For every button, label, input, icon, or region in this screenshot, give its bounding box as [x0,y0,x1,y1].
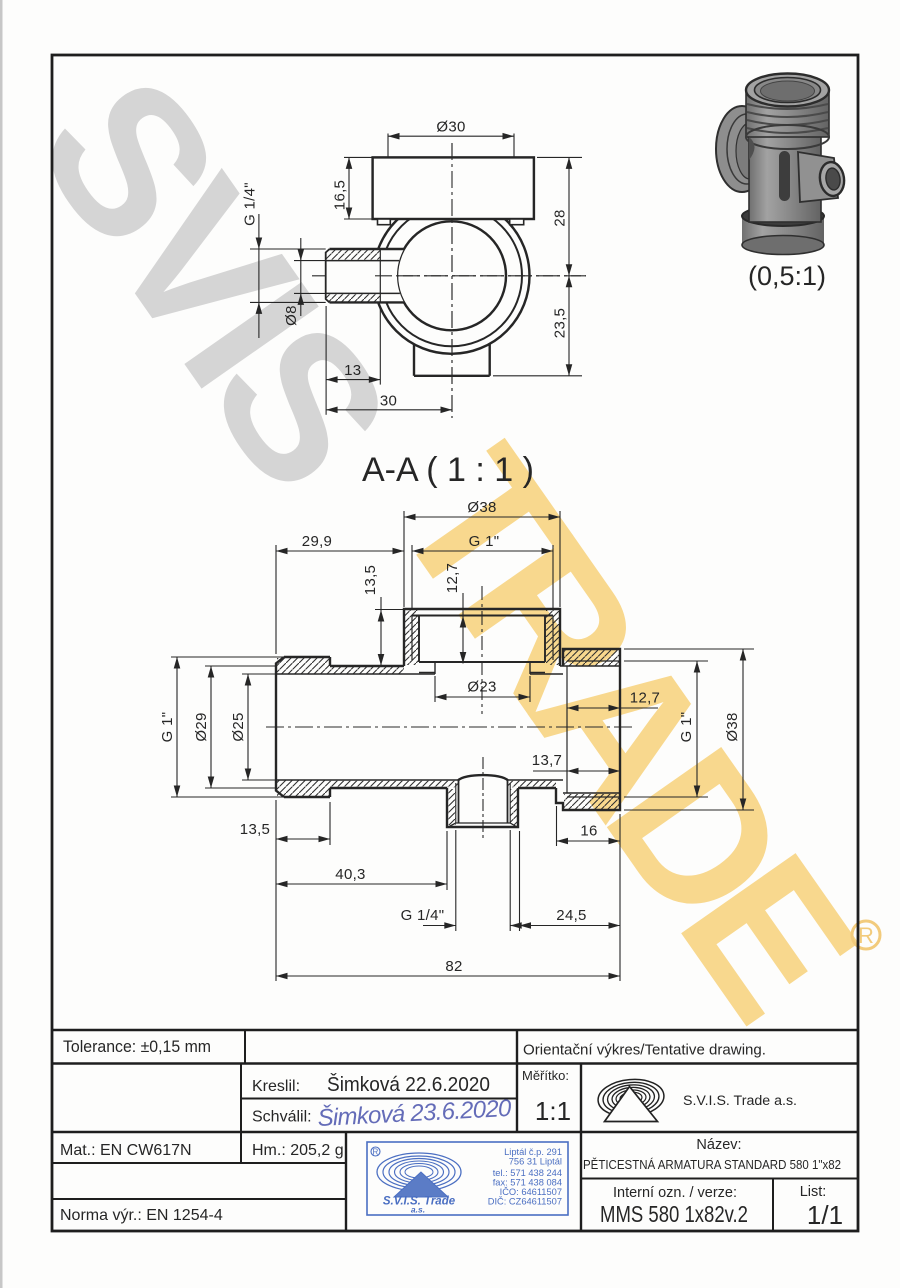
svg-text:G 1": G 1" [678,712,695,743]
svg-text:1/1: 1/1 [807,1200,843,1230]
svg-text:Ø23: Ø23 [467,679,496,696]
svg-text:Ø38: Ø38 [724,712,741,741]
svg-text:Měřítko:: Měřítko: [522,1068,569,1083]
svg-text:S.V.I.S. Trade a.s.: S.V.I.S. Trade a.s. [683,1093,797,1108]
svg-text:tel.: 571 438 244: tel.: 571 438 244 [493,1168,562,1178]
svg-text:13: 13 [344,362,361,379]
svg-text:Ø30: Ø30 [436,119,465,136]
svg-text:16,5: 16,5 [332,180,349,210]
svg-text:Norma výr.: EN 1254-4: Norma výr.: EN 1254-4 [60,1207,223,1224]
svg-text:12,7: 12,7 [630,690,660,707]
svg-text:Ø38: Ø38 [467,499,496,516]
svg-text:24,5: 24,5 [556,907,586,924]
svg-text:(0,5:1): (0,5:1) [748,261,826,291]
svg-text:Liptál č.p. 291: Liptál č.p. 291 [504,1147,562,1157]
svg-text:IČO: 64611507: IČO: 64611507 [500,1187,562,1197]
svg-text:82: 82 [445,958,462,975]
svg-text:Schválil:: Schválil: [252,1109,312,1126]
svg-text:23,5: 23,5 [552,308,569,338]
svg-text:G 1": G 1" [159,712,176,743]
svg-text:R: R [858,923,874,948]
svg-text:16: 16 [580,823,597,840]
svg-text:Ø25: Ø25 [230,712,247,741]
svg-text:TRADE: TRADE [353,411,897,1052]
svg-text:Šimková 23.6.2020: Šimková 23.6.2020 [317,1094,513,1132]
svg-text:PĚTICESTNÁ ARMATURA STANDARD 5: PĚTICESTNÁ ARMATURA STANDARD 580 1"x82 [583,1157,841,1172]
svg-text:Hm.: 205,2 g: Hm.: 205,2 g [252,1142,344,1159]
svg-text:13,7: 13,7 [532,752,562,769]
svg-text:13,5: 13,5 [362,565,379,595]
svg-text:Ø29: Ø29 [193,712,210,741]
svg-text:R: R [373,1148,379,1157]
svg-text:Ø8: Ø8 [283,305,300,326]
svg-text:DIČ: CZ64611507: DIČ: CZ64611507 [488,1197,562,1207]
svg-text:Šimková 22.6.2020: Šimková 22.6.2020 [327,1073,490,1096]
svg-text:Interní ozn. / verze:: Interní ozn. / verze: [613,1184,737,1201]
svg-text:756 31 Liptál: 756 31 Liptál [509,1157,562,1167]
svg-text:Tolerance: ±0,15 mm: Tolerance: ±0,15 mm [63,1037,211,1056]
svg-text:Mat.: EN CW617N: Mat.: EN CW617N [60,1142,192,1159]
svg-text:List:: List: [800,1184,827,1200]
svg-text:Kreslil:: Kreslil: [252,1078,300,1095]
svg-text:Název:: Název: [696,1137,741,1153]
svg-text:Orientační výkres/Tentative dr: Orientační výkres/Tentative drawing. [523,1043,766,1059]
svg-text:fax: 571 438 084: fax: 571 438 084 [493,1178,562,1188]
svg-text:G 1": G 1" [469,533,500,550]
svg-text:G 1/4": G 1/4" [242,182,259,226]
svg-text:12,7: 12,7 [444,563,461,593]
svg-text:A-A ( 1 : 1 ): A-A ( 1 : 1 ) [362,451,534,489]
svg-text:28: 28 [552,209,569,226]
svg-text:MMS 580 1x82v.2: MMS 580 1x82v.2 [600,1201,748,1227]
svg-text:G 1/4": G 1/4" [401,907,445,924]
svg-text:a.s.: a.s. [411,1205,425,1215]
svg-text:13,5: 13,5 [240,821,270,838]
svg-text:1:1: 1:1 [535,1096,571,1126]
svg-text:40,3: 40,3 [335,866,365,883]
svg-text:30: 30 [380,392,397,409]
svg-text:29,9: 29,9 [302,533,332,550]
